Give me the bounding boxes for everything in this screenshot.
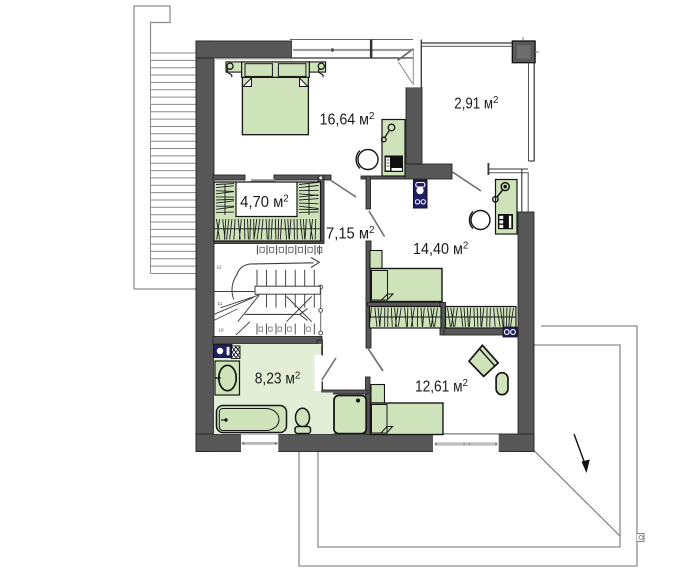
- svg-text:12,61 м2: 12,61 м2: [415, 378, 468, 395]
- svg-text:11: 11: [218, 301, 223, 306]
- svg-text:14,40 м2: 14,40 м2: [413, 240, 468, 257]
- svg-text:4,70 м2: 4,70 м2: [240, 194, 289, 211]
- svg-text:16,64 м2: 16,64 м2: [320, 111, 375, 128]
- svg-text:2,91 м2: 2,91 м2: [454, 95, 498, 112]
- svg-text:12: 12: [217, 265, 223, 270]
- svg-text:7,15 м2: 7,15 м2: [326, 225, 374, 242]
- svg-text:8,23 м2: 8,23 м2: [255, 370, 301, 387]
- svg-text:10: 10: [219, 328, 225, 333]
